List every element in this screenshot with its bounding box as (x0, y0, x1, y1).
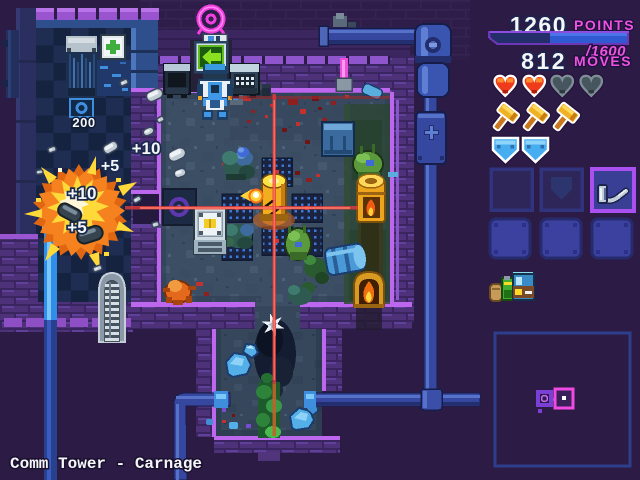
svg-text:200: 200 (72, 115, 95, 130)
svg-text:POINTS: POINTS (574, 17, 635, 33)
svg-text:+10: +10 (68, 184, 97, 203)
svg-text:812: 812 (521, 48, 567, 74)
svg-text:+5: +5 (101, 158, 119, 175)
svg-text:Comm Tower - Carnage: Comm Tower - Carnage (10, 455, 202, 473)
svg-text:+10: +10 (132, 139, 161, 158)
svg-text:MOVES: MOVES (574, 53, 632, 69)
svg-text:+5: +5 (67, 218, 86, 237)
